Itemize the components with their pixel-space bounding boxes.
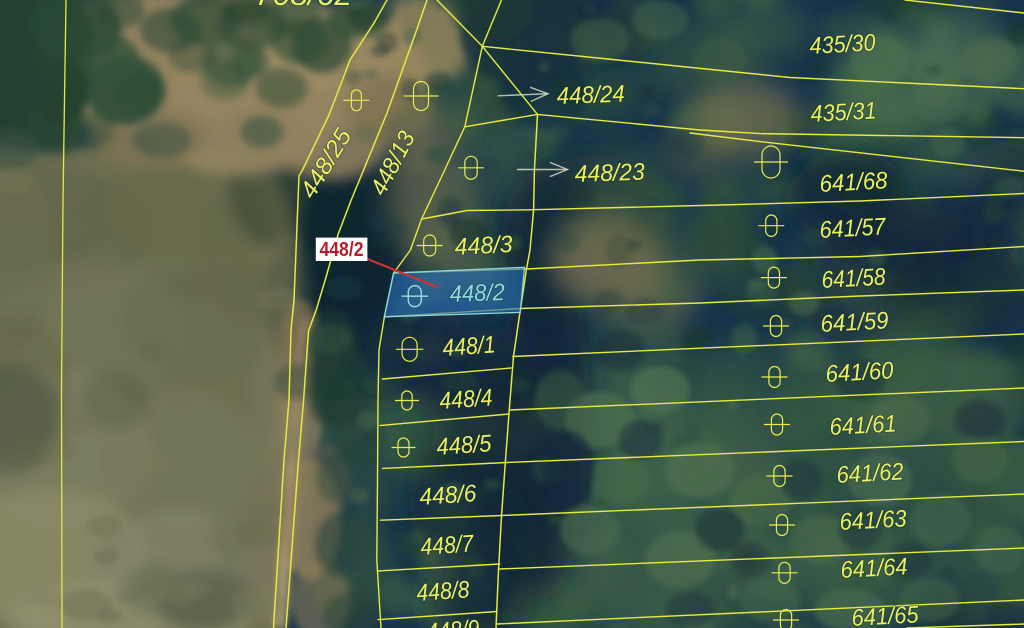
svg-text:435/31: 435/31 [810, 97, 877, 128]
svg-text:641/59: 641/59 [820, 307, 889, 338]
svg-text:448/8: 448/8 [416, 576, 471, 607]
svg-text:448/7: 448/7 [420, 530, 476, 561]
svg-text:641/63: 641/63 [839, 505, 908, 536]
svg-text:435/30: 435/30 [809, 29, 877, 60]
svg-text:641/58: 641/58 [821, 263, 887, 294]
svg-text:448/2: 448/2 [320, 239, 364, 261]
svg-text:448/23: 448/23 [574, 159, 646, 188]
svg-text:641/64: 641/64 [840, 553, 908, 584]
svg-text:641/65: 641/65 [851, 601, 920, 628]
svg-text:448/6: 448/6 [419, 480, 478, 511]
svg-text:448/2: 448/2 [449, 279, 505, 308]
svg-text:641/62: 641/62 [836, 458, 904, 489]
svg-text:641/60: 641/60 [825, 357, 895, 388]
svg-text:448/1: 448/1 [442, 331, 497, 362]
svg-text:448/24: 448/24 [556, 81, 625, 110]
svg-text:448/4: 448/4 [439, 384, 494, 415]
svg-text:641/68: 641/68 [819, 167, 889, 198]
svg-text:641/57: 641/57 [819, 213, 888, 244]
svg-text:448/5: 448/5 [436, 430, 493, 461]
svg-text:448/3: 448/3 [454, 231, 514, 261]
svg-text:708/62: 708/62 [255, 0, 352, 12]
svg-text:641/61: 641/61 [829, 410, 897, 441]
